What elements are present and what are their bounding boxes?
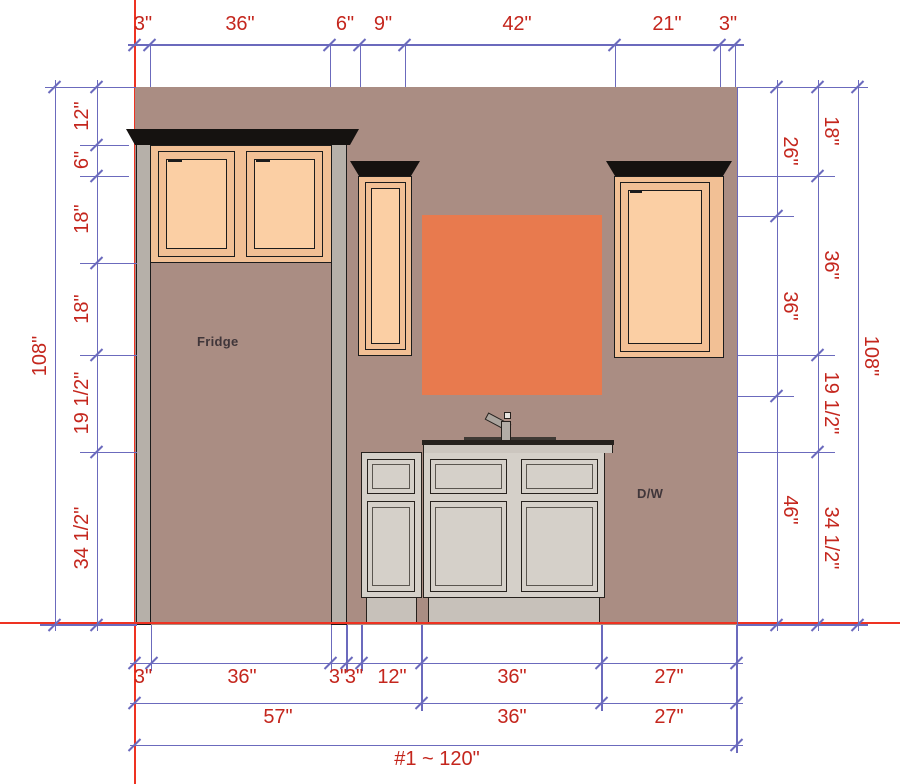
faucet-body[interactable]: [501, 421, 511, 441]
ext-line: [150, 46, 152, 87]
dim-label: 36": [205, 14, 275, 34]
hinge-mark: [168, 160, 182, 162]
sink-base-drawer-right-panel: [526, 464, 593, 489]
mid-cabinet-door-panel: [371, 188, 400, 344]
fridge-label: Fridge: [197, 334, 239, 349]
dim-label: 27": [634, 667, 704, 687]
sink-base-drawer-left-panel: [435, 464, 502, 489]
ext-line: [736, 625, 738, 753]
right-cabinet-crown[interactable]: [606, 161, 732, 176]
window-opening[interactable]: [422, 215, 602, 395]
dim-label: 9": [348, 14, 418, 34]
ext-line: [615, 46, 617, 87]
dim-line: [130, 663, 743, 665]
dim-label: 18": [821, 76, 841, 186]
dim-label: 27": [634, 707, 704, 727]
dim-label: 26": [780, 96, 800, 206]
dim-label: 3": [108, 14, 178, 34]
fridge-cabinet-door-right-panel: [254, 159, 315, 249]
dim-line: [55, 80, 57, 631]
dim-label-total: #1 ~ 120": [377, 749, 497, 769]
dim-label: 34 1/2": [72, 483, 92, 593]
dim-label: 108": [861, 301, 881, 411]
fridge-panel-left[interactable]: [136, 143, 151, 625]
dim-label: 12": [357, 667, 427, 687]
dim-label: 36": [477, 707, 547, 727]
dim-line: [128, 44, 744, 46]
sink-base-door-right-panel: [526, 507, 593, 586]
dishwasher-label: D/W: [637, 486, 663, 501]
dim-line: [858, 80, 860, 631]
dim-label: 19 1/2": [72, 348, 92, 458]
dim-label: 19 1/2": [821, 348, 841, 458]
countertop[interactable]: [423, 445, 613, 453]
elevation-canvas: Fridge D/W 3" 36: [0, 0, 900, 784]
dim-line: [130, 703, 743, 705]
base-cabinet-12-door-panel: [372, 507, 410, 586]
hinge-mark: [256, 160, 270, 162]
dim-label: 57": [243, 707, 313, 727]
ext-line: [735, 46, 737, 87]
dim-label: 3": [693, 14, 763, 34]
ext-line: [737, 87, 868, 89]
ext-line: [737, 216, 794, 218]
ext-line: [405, 46, 407, 87]
fridge-panel-right[interactable]: [331, 143, 347, 625]
ext-line: [720, 46, 722, 87]
fridge-cabinet-door-left-panel: [166, 159, 227, 249]
ext-line: [360, 46, 362, 87]
ext-line: [330, 46, 332, 87]
dim-label: 36": [780, 251, 800, 361]
dim-label: 3": [108, 667, 178, 687]
dim-label: 21": [632, 14, 702, 34]
ext-line: [601, 625, 603, 711]
dim-label: 36": [821, 210, 841, 320]
sink-base-door-left-panel: [435, 507, 502, 586]
ext-line: [737, 624, 868, 626]
dim-label: 108": [30, 301, 50, 411]
dim-label: 42": [482, 14, 552, 34]
sink-base-toekick: [428, 598, 600, 624]
base-cabinet-12-drawer-panel: [372, 464, 410, 489]
fridge-cabinet-crown[interactable]: [126, 129, 359, 145]
base-cabinet-12-toekick: [366, 598, 417, 624]
faucet-handle: [504, 412, 511, 419]
dim-label: 36": [477, 667, 547, 687]
ext-line: [737, 396, 794, 398]
dim-label: 34 1/2": [821, 483, 841, 593]
dim-label: 46": [780, 455, 800, 565]
hinge-mark: [630, 191, 642, 193]
mid-cabinet-crown[interactable]: [350, 161, 420, 176]
ext-line: [737, 87, 739, 633]
right-cabinet-door-panel: [628, 190, 702, 344]
dim-label: 36": [207, 667, 277, 687]
dim-line: [130, 745, 743, 747]
